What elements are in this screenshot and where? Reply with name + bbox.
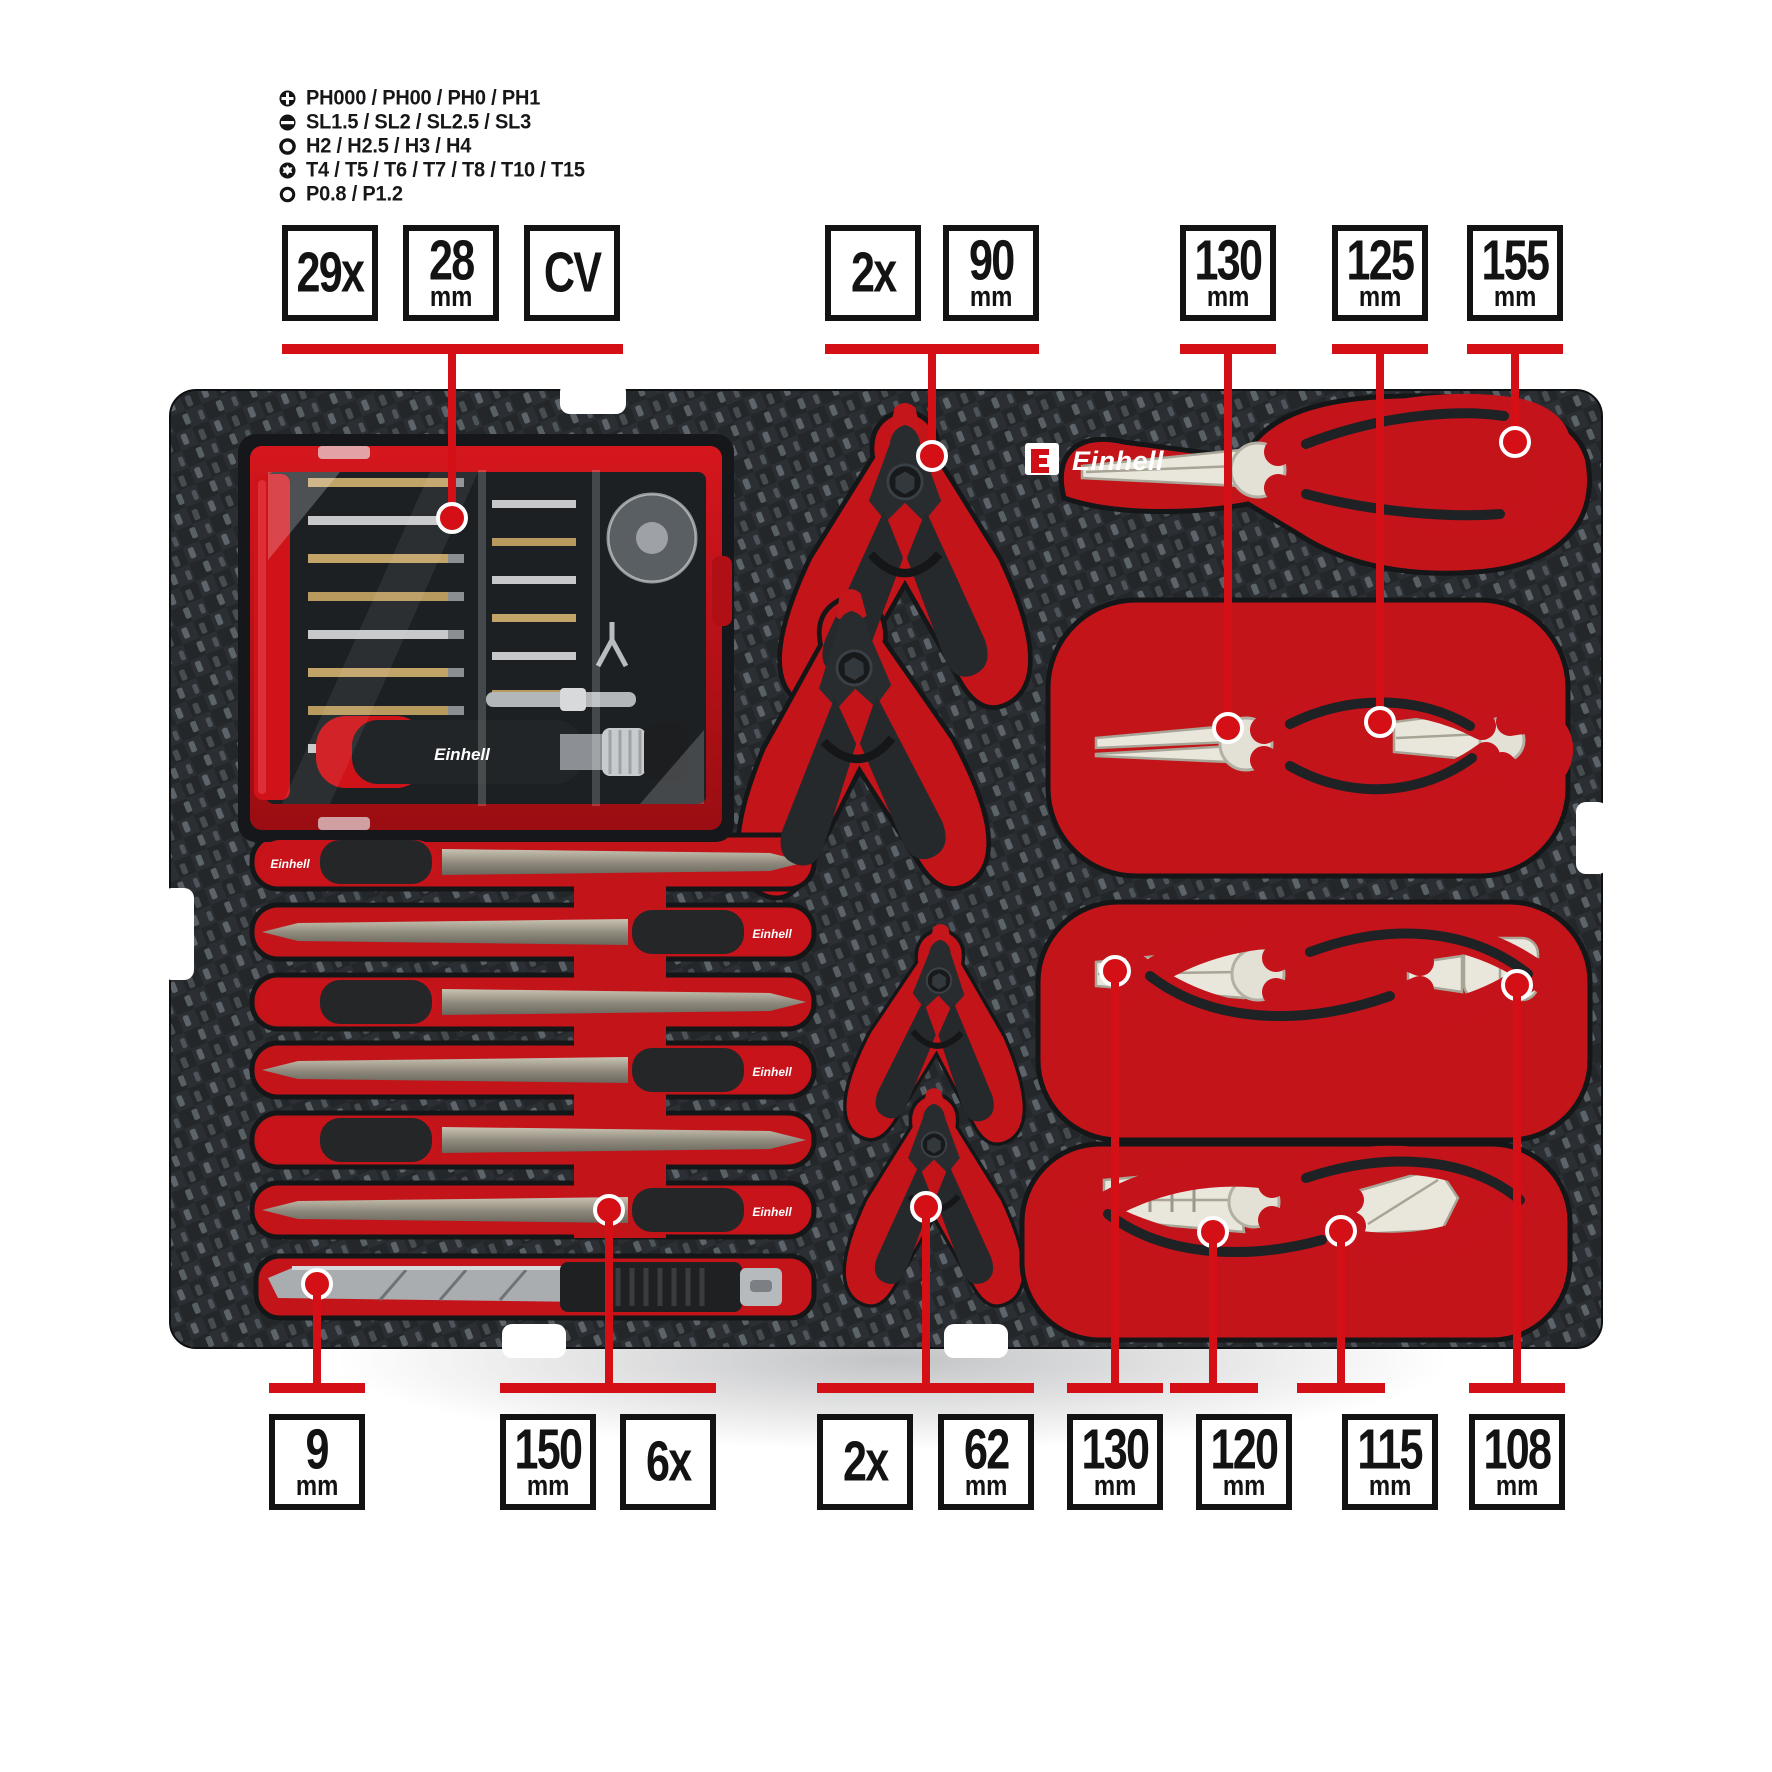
phillips-icon	[279, 90, 296, 107]
legend-text: SL1.5 / SL2 / SL2.5 / SL3	[306, 110, 531, 134]
leader-line-diagonal	[1337, 1237, 1345, 1383]
legend-row-torx: T4 / T5 / T6 / T7 / T8 / T10 / T15	[279, 158, 585, 182]
leader-dot-clamps-90	[916, 440, 948, 472]
leader-dot-round-nose	[1212, 712, 1244, 744]
dim-unit: mm	[1094, 1473, 1137, 1496]
dim-unit: mm	[296, 1473, 339, 1496]
legend-row-hex: H2 / H2.5 / H3 / H4	[279, 134, 585, 158]
leader-dot-bit-set	[436, 502, 468, 534]
dim-box-155mm: 155 mm	[1467, 225, 1563, 321]
leader-line-bent-nose	[1376, 344, 1384, 712]
dim-box-2x-small-clamps: 2x	[817, 1414, 913, 1510]
leader-dot-long-nose	[1499, 426, 1531, 458]
svg-text:Einhell: Einhell	[270, 857, 310, 871]
dim-box-125mm: 125 mm	[1332, 225, 1428, 321]
dim-value: 62	[964, 1425, 1008, 1474]
dim-unit: mm	[1359, 284, 1402, 307]
legend-row-pentalobe: P0.8 / P1.2	[279, 182, 585, 206]
dim-box-130mm-top: 130 mm	[1180, 225, 1276, 321]
dim-box-2x-clamps: 2x	[825, 225, 921, 321]
pentalobe-icon	[279, 186, 296, 203]
dim-value: 2x	[851, 249, 895, 298]
dim-value: 120	[1211, 1425, 1278, 1474]
dim-box-62mm: 62 mm	[938, 1414, 1034, 1510]
leader-line-end-cutter	[1513, 991, 1521, 1383]
dim-unit: mm	[1207, 284, 1250, 307]
dim-box-130mm-bottom: 130 mm	[1067, 1414, 1163, 1510]
svg-text:Einhell: Einhell	[752, 1205, 792, 1219]
dim-box-120mm: 120 mm	[1196, 1414, 1292, 1510]
legend-row-slotted: SL1.5 / SL2 / SL2.5 / SL3	[279, 110, 585, 134]
dim-box-28mm: 28 mm	[403, 225, 499, 321]
svg-text:Einhell: Einhell	[752, 927, 792, 941]
leader-bar-combination	[1170, 1383, 1258, 1393]
leader-line-long-nose	[1511, 344, 1519, 436]
einhell-logo-text: Einhell	[1072, 446, 1164, 476]
dim-value: 90	[969, 236, 1013, 285]
leader-bar-knife	[269, 1383, 365, 1393]
leader-bar-end-cutter	[1469, 1383, 1565, 1393]
bit-set-case: Einhell	[238, 434, 734, 842]
dim-unit: mm	[965, 1473, 1008, 1496]
dim-unit: mm	[1494, 284, 1537, 307]
dim-unit: mm	[970, 284, 1013, 307]
dim-box-29x: 29x	[282, 225, 378, 321]
dim-box-cv: CV	[524, 225, 620, 321]
legend-text: P0.8 / P1.2	[306, 182, 403, 206]
dim-value: 108	[1484, 1425, 1551, 1474]
leader-bar-files	[500, 1383, 716, 1393]
legend-text: H2 / H2.5 / H3 / H4	[306, 134, 471, 158]
dim-box-9mm: 9 mm	[269, 1414, 365, 1510]
dim-unit: mm	[430, 284, 473, 307]
hex-icon	[279, 138, 296, 155]
dim-value: 2x	[843, 1438, 887, 1487]
dim-value: 130	[1082, 1425, 1149, 1474]
dim-box-6x: 6x	[620, 1414, 716, 1510]
dim-unit: mm	[1496, 1473, 1539, 1496]
dim-box-115mm: 115 mm	[1342, 1414, 1438, 1510]
dim-value: 115	[1358, 1425, 1422, 1474]
einhell-logo-mark	[1031, 449, 1049, 473]
dim-value: 28	[429, 236, 473, 285]
leader-bar-diagonal	[1297, 1383, 1385, 1393]
leader-line-round-nose	[1224, 344, 1232, 718]
bit-size-legend: PH000 / PH00 / PH0 / PH1 SL1.5 / SL2 / S…	[279, 86, 585, 206]
product-infographic: Einhell Einhell	[0, 0, 1772, 1772]
dim-box-150mm: 150 mm	[500, 1414, 596, 1510]
leader-line-files	[605, 1216, 613, 1383]
leader-bar-flat-nose	[1067, 1383, 1163, 1393]
leader-line-bit-set	[448, 344, 456, 508]
einhell-logo: Einhell	[1025, 443, 1164, 476]
dim-unit: mm	[527, 1473, 570, 1496]
leader-bar-clamps-62	[817, 1383, 1034, 1393]
leader-line-clamps-90	[928, 344, 936, 446]
legend-text: PH000 / PH00 / PH0 / PH1	[306, 86, 540, 110]
leader-line-combination	[1209, 1238, 1217, 1383]
dim-value: 150	[515, 1425, 582, 1474]
dim-value: 29x	[297, 249, 364, 298]
dim-value: 125	[1347, 236, 1414, 285]
slotted-icon	[279, 114, 296, 131]
dim-unit: mm	[1223, 1473, 1266, 1496]
dim-value: 130	[1195, 236, 1262, 285]
dim-value: 6x	[646, 1438, 690, 1487]
dim-unit: mm	[1369, 1473, 1412, 1496]
leader-line-flat-nose	[1111, 977, 1119, 1383]
dim-value: CV	[544, 249, 600, 298]
torx-icon	[279, 162, 296, 179]
dim-box-108mm: 108 mm	[1469, 1414, 1565, 1510]
leader-line-knife	[313, 1290, 321, 1383]
dim-value: 9	[306, 1425, 328, 1474]
legend-text: T4 / T5 / T6 / T7 / T8 / T10 / T15	[306, 158, 585, 182]
svg-text:Einhell: Einhell	[752, 1065, 792, 1079]
dim-box-90mm: 90 mm	[943, 225, 1039, 321]
legend-row-phillips: PH000 / PH00 / PH0 / PH1	[279, 86, 585, 110]
leader-dot-bent-nose	[1364, 706, 1396, 738]
dim-value: 155	[1482, 236, 1549, 285]
leader-line-clamps-62	[922, 1213, 930, 1383]
